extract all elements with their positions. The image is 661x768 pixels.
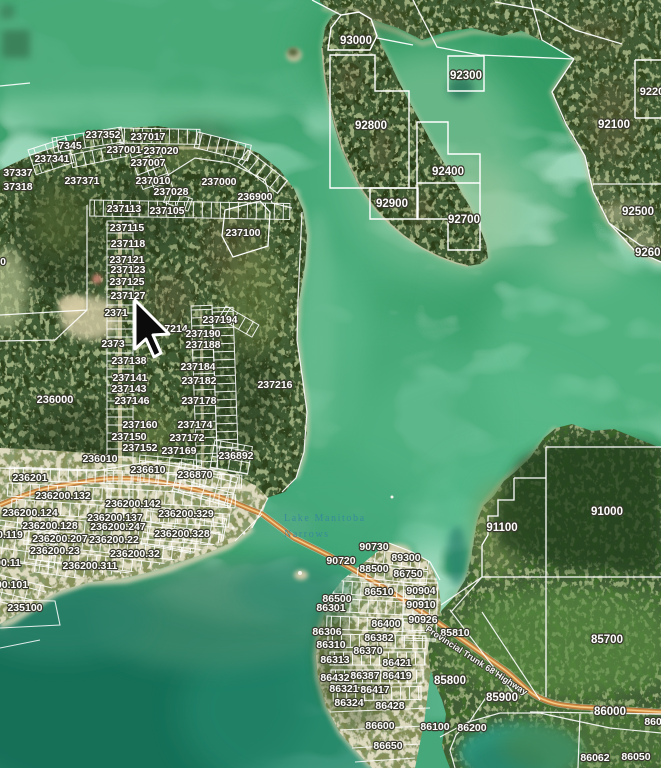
svg-text:236200.207: 236200.207: [32, 533, 88, 545]
svg-text:236892: 236892: [218, 450, 253, 462]
svg-text:237118: 237118: [111, 238, 146, 250]
svg-text:237178: 237178: [181, 395, 216, 407]
svg-text:86200: 86200: [457, 722, 486, 734]
svg-text:237028: 237028: [153, 186, 188, 198]
svg-text:237182: 237182: [181, 375, 216, 387]
svg-text:237160: 237160: [122, 419, 157, 431]
svg-text:37318: 37318: [3, 181, 32, 193]
svg-text:237146: 237146: [114, 395, 149, 407]
svg-text:237194: 237194: [202, 314, 237, 326]
svg-text:236200.132: 236200.132: [35, 490, 91, 502]
svg-text:88500: 88500: [359, 563, 388, 575]
svg-text:90910: 90910: [406, 599, 435, 611]
svg-text:86062: 86062: [580, 752, 609, 764]
svg-text:86417: 86417: [360, 684, 389, 696]
svg-text:00.11: 00.11: [0, 557, 21, 569]
svg-text:236010: 236010: [82, 453, 117, 465]
svg-text:90720: 90720: [326, 555, 355, 567]
svg-text:236200.23: 236200.23: [30, 545, 80, 557]
svg-text:237143: 237143: [111, 383, 146, 395]
svg-text:2373: 2373: [101, 338, 125, 350]
svg-text:237113: 237113: [107, 203, 142, 215]
svg-text:236870: 236870: [177, 469, 212, 481]
svg-text:85700: 85700: [591, 634, 623, 646]
svg-text:7345: 7345: [58, 140, 82, 152]
svg-text:237125: 237125: [109, 276, 144, 288]
svg-text:237115: 237115: [110, 222, 145, 234]
svg-text:92400: 92400: [432, 166, 464, 178]
svg-text:Narrows: Narrows: [284, 529, 330, 540]
svg-text:9220: 9220: [640, 86, 661, 98]
svg-text:0: 0: [0, 256, 6, 268]
svg-text:237105: 237105: [149, 205, 184, 217]
svg-text:90730: 90730: [359, 541, 388, 553]
svg-text:92800: 92800: [355, 120, 387, 132]
svg-text:86313: 86313: [320, 654, 349, 666]
svg-text:86000: 86000: [594, 706, 626, 718]
svg-text:237371: 237371: [64, 175, 99, 187]
svg-text:236200.142: 236200.142: [105, 498, 161, 510]
svg-text:86421: 86421: [382, 657, 411, 669]
svg-text:8600: 8600: [644, 716, 661, 728]
svg-text:00.101: 00.101: [0, 579, 28, 591]
svg-text:237172: 237172: [169, 432, 204, 444]
svg-text:91100: 91100: [486, 522, 517, 534]
svg-text:92900: 92900: [376, 198, 408, 210]
svg-text:92100: 92100: [598, 119, 630, 131]
svg-text:90926: 90926: [408, 614, 437, 626]
svg-text:86306: 86306: [312, 626, 341, 638]
svg-text:237216: 237216: [257, 379, 292, 391]
svg-text:86387: 86387: [350, 670, 379, 682]
svg-text:86370: 86370: [353, 645, 382, 657]
svg-text:Lake Manitoba: Lake Manitoba: [284, 513, 366, 524]
svg-text:93000: 93000: [340, 35, 372, 47]
svg-text:92700: 92700: [448, 214, 480, 226]
svg-text:86600: 86600: [365, 720, 394, 732]
svg-text:236200.128: 236200.128: [22, 520, 78, 532]
svg-text:89300: 89300: [391, 552, 420, 564]
svg-text:237169: 237169: [161, 445, 196, 457]
svg-text:235100: 235100: [7, 602, 42, 614]
svg-text:86301: 86301: [316, 602, 345, 614]
svg-text:236000: 236000: [37, 394, 74, 406]
svg-text:236610: 236610: [130, 464, 165, 476]
svg-text:237184: 237184: [180, 361, 215, 373]
svg-text:237174: 237174: [177, 419, 212, 431]
svg-text:91000: 91000: [591, 506, 623, 518]
svg-text:0.119: 0.119: [0, 529, 23, 541]
svg-text:85800: 85800: [434, 675, 466, 687]
svg-text:237001: 237001: [106, 144, 141, 156]
svg-text:236200.247: 236200.247: [90, 521, 146, 533]
svg-text:237007: 237007: [130, 157, 165, 169]
svg-text:236200.32: 236200.32: [110, 548, 160, 560]
svg-text:86419: 86419: [382, 670, 411, 682]
svg-text:237127: 237127: [110, 290, 145, 302]
svg-text:237000: 237000: [201, 176, 236, 188]
svg-text:237188: 237188: [185, 339, 220, 351]
svg-text:237100: 237100: [225, 227, 260, 239]
svg-text:86400: 86400: [371, 618, 400, 630]
svg-text:86650: 86650: [373, 740, 402, 752]
svg-text:237152: 237152: [122, 442, 157, 454]
svg-text:92500: 92500: [622, 206, 654, 218]
svg-text:86428: 86428: [375, 700, 404, 712]
svg-text:37337: 37337: [3, 167, 32, 179]
svg-text:2371: 2371: [104, 307, 128, 319]
svg-text:85900: 85900: [486, 692, 518, 704]
svg-text:86050: 86050: [621, 751, 650, 763]
svg-text:236200.311: 236200.311: [63, 560, 118, 572]
svg-text:237352: 237352: [85, 129, 120, 141]
svg-text:86310: 86310: [316, 639, 345, 651]
svg-text:237138: 237138: [111, 355, 146, 367]
svg-text:237341: 237341: [34, 153, 69, 165]
svg-text:236900: 236900: [237, 191, 272, 203]
svg-text:237123: 237123: [110, 264, 145, 276]
svg-text:90904: 90904: [406, 585, 435, 597]
svg-text:86510: 86510: [364, 586, 393, 598]
svg-text:86100: 86100: [420, 721, 449, 733]
svg-text:236200.124: 236200.124: [2, 507, 58, 519]
svg-text:86382: 86382: [364, 632, 393, 644]
svg-text:92300: 92300: [450, 70, 482, 82]
svg-text:236201: 236201: [12, 472, 47, 484]
svg-text:236200.329: 236200.329: [158, 508, 214, 520]
svg-text:236200.22: 236200.22: [89, 534, 139, 546]
svg-text:92600: 92600: [635, 247, 661, 259]
svg-text:237020: 237020: [143, 145, 178, 157]
svg-text:86321: 86321: [329, 683, 358, 695]
svg-text:236200.328: 236200.328: [154, 528, 210, 540]
svg-text:86324: 86324: [334, 697, 363, 709]
svg-text:237017: 237017: [130, 131, 165, 143]
svg-text:86750: 86750: [393, 568, 422, 580]
